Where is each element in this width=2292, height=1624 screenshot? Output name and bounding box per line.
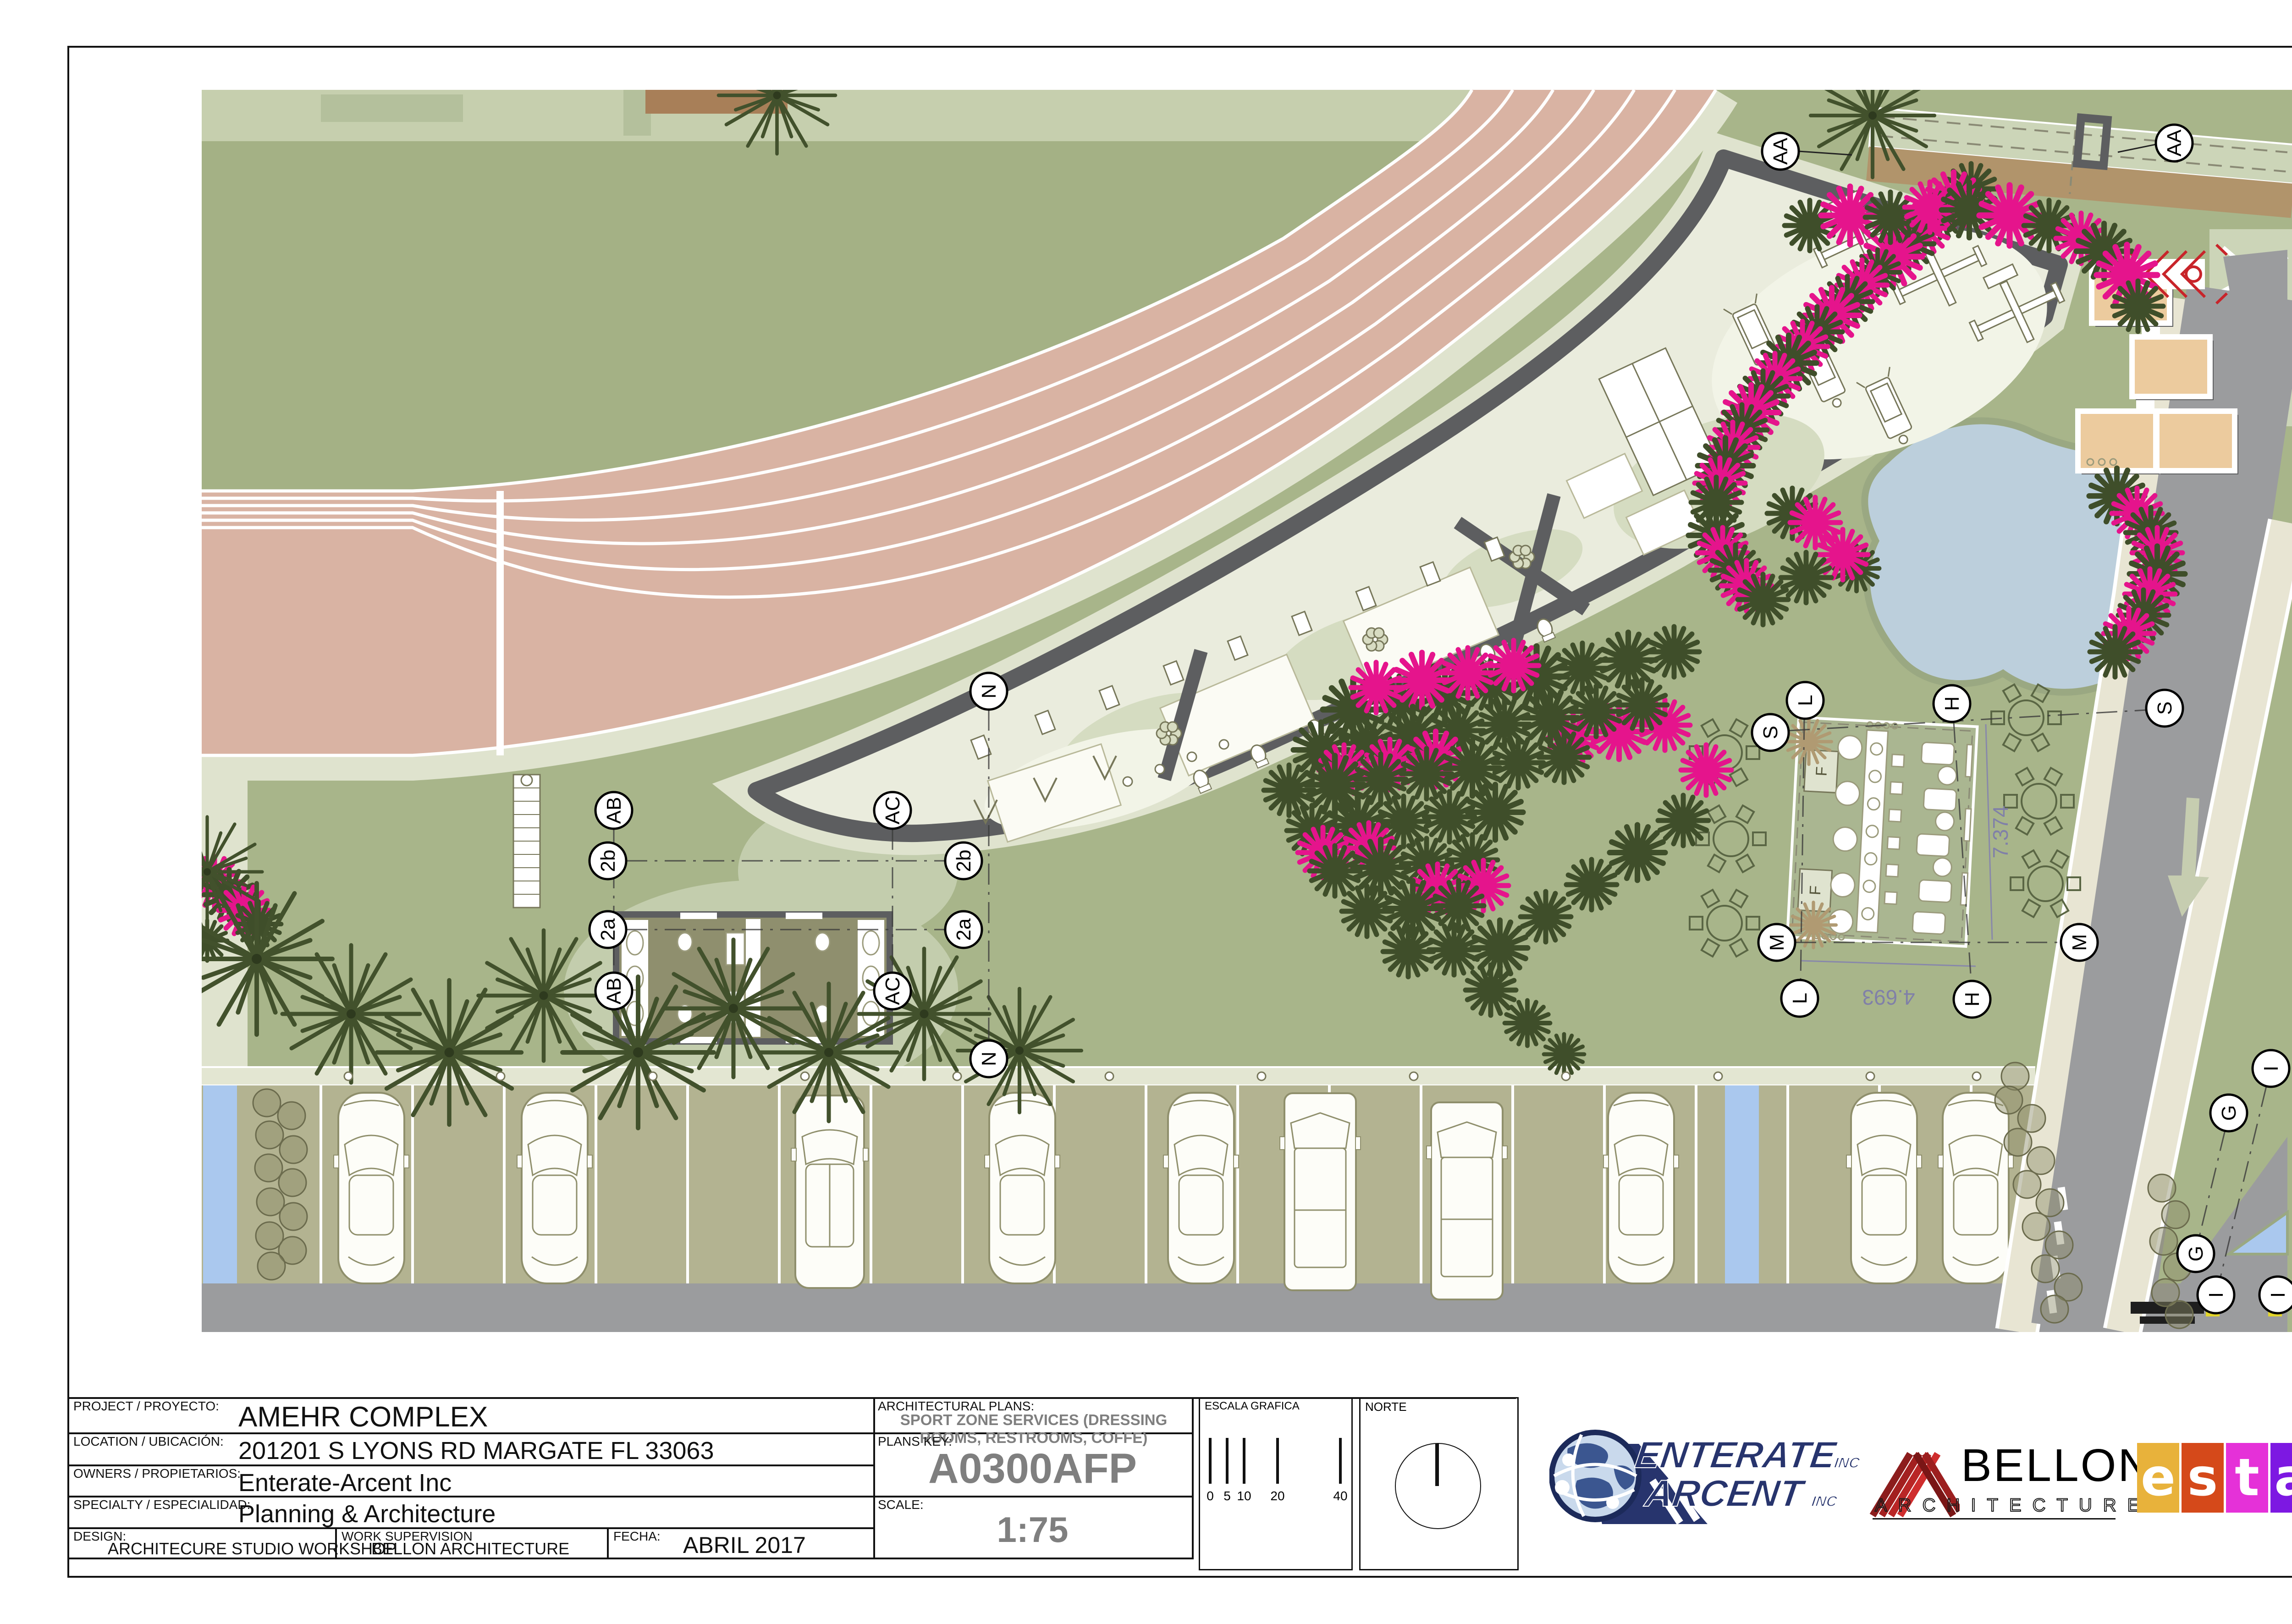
estar-tile: e [2137, 1443, 2179, 1513]
scale-tick: 40 [1333, 1489, 1347, 1503]
globe-icon [1552, 1432, 1639, 1519]
estar-tile: s [2182, 1443, 2224, 1513]
arcent-inc: INC [1811, 1493, 1838, 1509]
estar-letter: a [2274, 1448, 2292, 1508]
north-needle [1435, 1444, 1439, 1486]
scale-value: 1:75 [873, 1509, 1192, 1551]
specialty-label: SPECIALTY / ESPECIALIDAD: [73, 1497, 250, 1512]
graphic-scale-box [1199, 1397, 1353, 1570]
estar-letter: t [2235, 1448, 2259, 1508]
bellon-name: BELLON [1961, 1439, 2153, 1492]
scale-tick: 0 [1207, 1489, 1214, 1503]
owners-label: OWNERS / PROPIETARIOS: [73, 1466, 241, 1481]
enterate-text: ENTERATE [1633, 1434, 1839, 1476]
bellon-subtitle: ARCHITECTURE [1875, 1495, 2150, 1516]
plans-key-value: A0300AFP [873, 1445, 1192, 1493]
date-label: FECHA: [613, 1529, 661, 1544]
estar-tile: t [2226, 1443, 2268, 1513]
scale-tick: 20 [1270, 1489, 1284, 1503]
sheet-frame [67, 46, 2292, 1578]
project-label: PROJECT / PROYECTO: [73, 1399, 219, 1414]
estar-letter: s [2187, 1448, 2218, 1508]
scale-tick: 5 [1223, 1489, 1231, 1503]
specialty-value: Planning & Architecture [238, 1500, 496, 1528]
north-label: NORTE [1365, 1400, 1407, 1414]
estar-tile: a [2270, 1443, 2292, 1513]
supervision-value: BELLON ARCHITECTURE [371, 1539, 569, 1558]
estar-letter: e [2141, 1448, 2176, 1508]
logo-estar: e s t a r [2137, 1443, 2292, 1513]
date-value: ABRIL 2017 [683, 1532, 806, 1558]
project-value: AMEHR COMPLEX [238, 1401, 488, 1433]
enterate-inc: INC [1833, 1454, 1861, 1471]
scale-tick: 10 [1237, 1489, 1251, 1503]
location-label: LOCATION / UBICACIÓN: [73, 1434, 224, 1449]
graphic-scale-label: ESCALA GRAFICA [1205, 1400, 1300, 1413]
location-value: 201201 S LYONS RD MARGATE FL 33063 [238, 1437, 714, 1465]
owners-value: Enterate-Arcent Inc [238, 1469, 452, 1497]
arcent-text: ARCENT [1643, 1473, 1805, 1514]
